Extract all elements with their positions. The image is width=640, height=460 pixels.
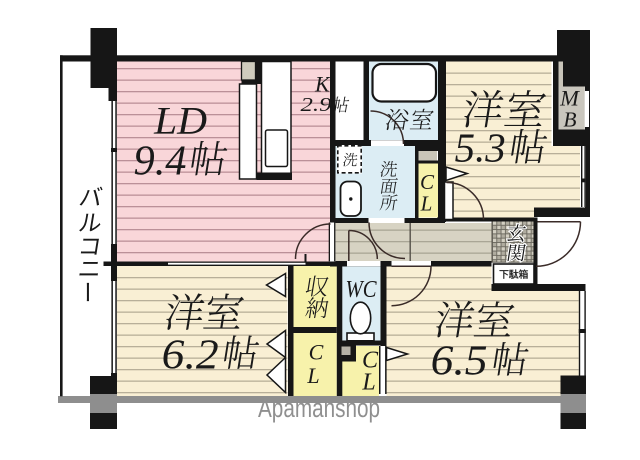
- svg-text:Apamanshop: Apamanshop: [258, 395, 380, 423]
- svg-text:WC: WC: [346, 277, 378, 303]
- svg-text:C: C: [309, 340, 324, 365]
- svg-text:K: K: [314, 72, 331, 97]
- svg-text:L: L: [361, 370, 375, 396]
- svg-text:5.3: 5.3: [455, 125, 506, 171]
- svg-text:L: L: [420, 192, 433, 216]
- svg-text:2.9: 2.9: [301, 94, 332, 116]
- svg-text:B: B: [563, 108, 576, 132]
- svg-text:L: L: [306, 363, 319, 388]
- svg-text:9.4: 9.4: [134, 138, 187, 184]
- svg-text:C: C: [420, 170, 435, 194]
- svg-text:6.5: 6.5: [431, 338, 488, 384]
- svg-text:LD: LD: [153, 98, 207, 142]
- svg-text:6.2: 6.2: [162, 332, 219, 378]
